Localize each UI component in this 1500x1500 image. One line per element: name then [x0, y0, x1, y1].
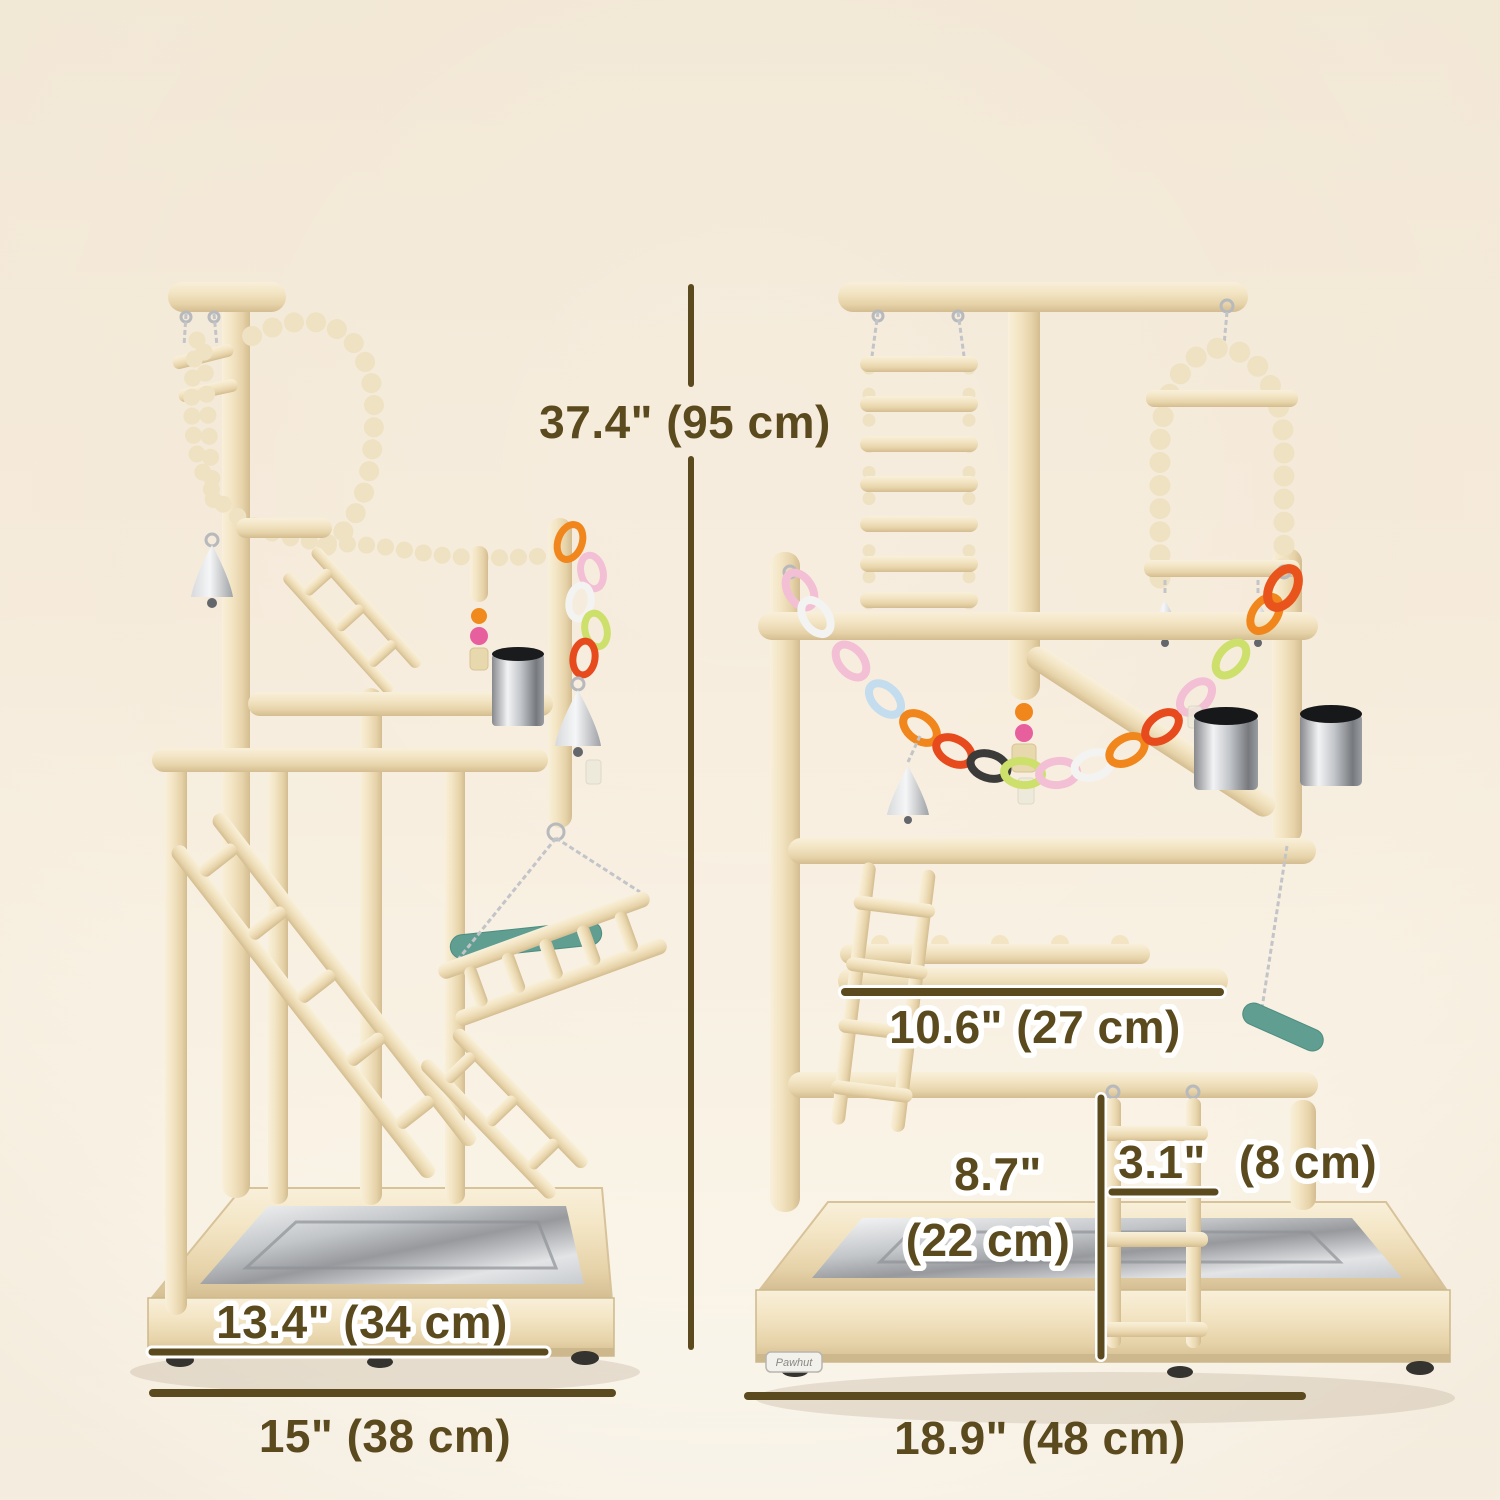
ladder-height-value-label: 8.7"	[954, 1148, 1042, 1200]
front-middle-bar	[788, 838, 1316, 864]
side-base-width-label: 15" (38 cm)	[259, 1410, 511, 1462]
side-top-perch	[168, 282, 286, 312]
side-feeding-cup	[492, 647, 544, 726]
front-top-perch	[838, 282, 1248, 312]
brand-label: Pawhut	[776, 1357, 814, 1369]
base-depth-label: 13.4" (34 cm)	[216, 1296, 508, 1348]
ladder-width-metric-label: (8 cm)	[1239, 1136, 1377, 1188]
product-dimension-diagram: Pawhut	[0, 0, 1500, 1500]
side-upper-platform	[236, 518, 332, 538]
side-cross-bar	[152, 748, 548, 772]
ladder-width-value-label: 3.1"	[1118, 1136, 1206, 1188]
height-dimension-label: 37.4" (95 cm)	[539, 396, 831, 448]
platform-dimension-label: 10.6" (27 cm)	[889, 1001, 1181, 1053]
ladder-height-metric-label: (22 cm)	[906, 1214, 1071, 1266]
brand-plate: Pawhut	[766, 1352, 822, 1372]
front-base-width-label: 18.9" (48 cm)	[894, 1412, 1186, 1464]
front-upper-bar	[758, 612, 1318, 640]
